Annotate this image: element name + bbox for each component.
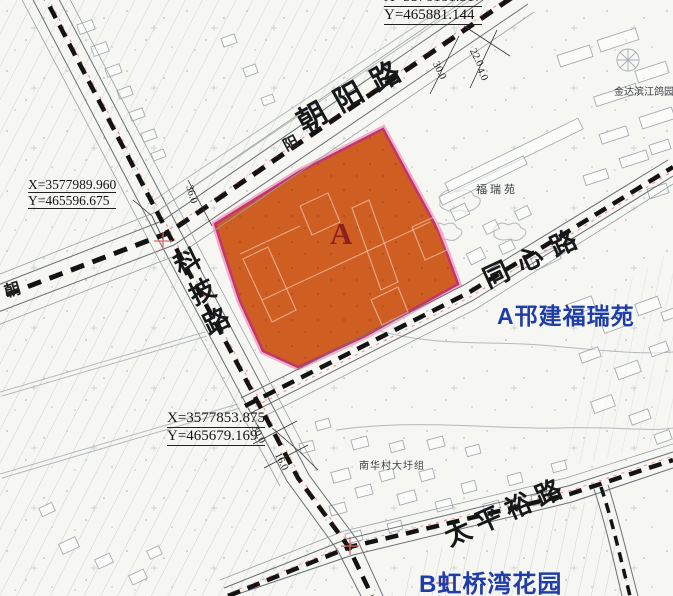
- place-label-nanhua-village: 南华村大圩组: [359, 457, 425, 472]
- coordinate-label-left: X=3577989.960 Y=465596.675: [28, 177, 116, 209]
- parcel-a-letter: A: [330, 216, 352, 252]
- legend-site-a: A邗建福瑞苑: [497, 297, 635, 331]
- coordinate-left-y: Y=465596.675: [28, 193, 116, 209]
- legend-site-b: B虹桥湾花园: [419, 564, 562, 596]
- coordinate-label-top: X=3578181.517 Y=465881.144: [384, 0, 482, 25]
- place-label-furuiyuan: 福瑞苑: [476, 181, 518, 197]
- planning-map: 朝阳路 科技路 同心路 太平裕路 阳 朝 A邗建福瑞苑 B虹桥湾花园 福瑞苑 金…: [0, 0, 673, 596]
- roundabout-garden: [617, 49, 639, 71]
- coordinate-left-x: X=3577989.960: [28, 177, 116, 193]
- coordinate-bottom-x: X=3577853.875: [167, 410, 265, 428]
- place-label-jinda-binjiang: 金达滨江鸽园: [614, 83, 673, 98]
- coordinate-top-y: Y=465881.144: [384, 7, 482, 25]
- coordinate-top-x: X=3578181.517: [384, 0, 482, 7]
